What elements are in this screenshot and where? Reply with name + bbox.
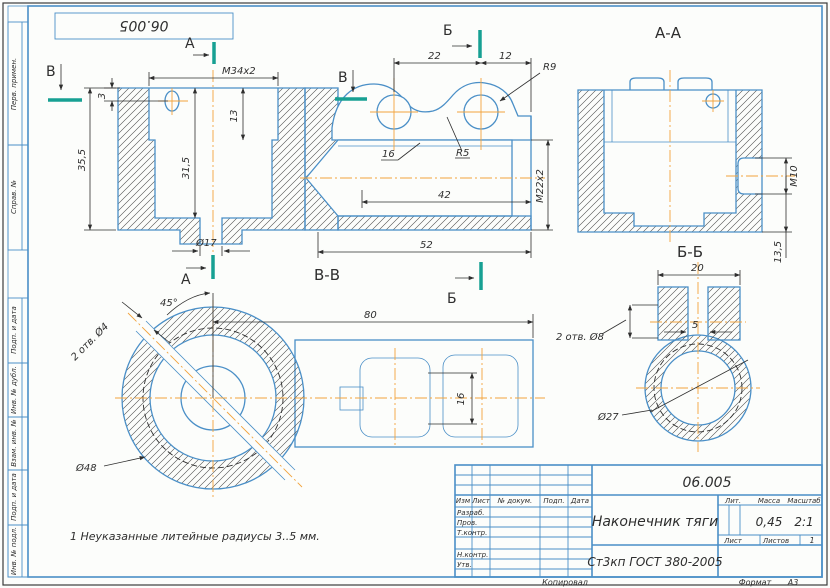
dim-52: 52 — [420, 240, 433, 251]
dim-r9: R9 — [543, 62, 556, 73]
tb-sheet-label: Лист — [723, 537, 743, 545]
section-vv-label: В-В — [314, 266, 340, 284]
dim-45deg: 45° — [160, 298, 178, 309]
section-aa-label: А-А — [655, 24, 682, 42]
tb-role-tkontr: Т.контр. — [457, 529, 487, 537]
section-bb-label: Б-Б — [677, 243, 703, 261]
section-arrow-b-top-label: Б — [443, 23, 453, 39]
tb-header-dokum: № докум. — [497, 497, 533, 505]
section-arrow-a-bottom-label: А — [181, 272, 191, 288]
margin-label: Справ. № — [10, 180, 18, 214]
dim-80: 80 — [364, 310, 377, 321]
dim-d27: Ø27 — [597, 411, 619, 423]
dim-m34x2: М34х2 — [222, 66, 256, 77]
tb-sheets-label: Листов — [762, 537, 789, 545]
format-label: Формат — [739, 578, 772, 587]
dim-holes8: 2 отв. Ø8 — [556, 331, 604, 343]
dim-20: 20 — [691, 263, 704, 274]
dim-d17: Ø17 — [195, 237, 217, 249]
drawing-sheet: Перв. примен. Справ. № Подп. и дата Инв.… — [0, 0, 830, 588]
dim-16-vv: 16 — [456, 393, 467, 406]
dim-35-5: 35,5 — [77, 149, 88, 171]
copied-label: Копировал — [542, 578, 588, 587]
tb-role-nkontr: Н.контр. — [457, 551, 488, 559]
margin-label: Взам. инв. № — [10, 419, 18, 467]
tb-header-podp: Подп. — [543, 497, 564, 505]
tb-mass-label: Масса — [758, 497, 780, 505]
dim-d48: Ø48 — [75, 462, 97, 474]
tb-scale-label: Масштаб — [787, 497, 821, 505]
margin-label: Инв. № дубл. — [10, 366, 18, 414]
dim-13: 13 — [229, 110, 240, 123]
tb-role-razrab: Разраб. — [457, 509, 485, 517]
dim-16-rod: 16 — [382, 149, 395, 160]
rod-bottom-wall — [338, 216, 531, 230]
part-name: Наконечник тяги — [592, 514, 718, 530]
section-arrow-a-top-label: А — [185, 36, 195, 52]
tb-header-izm: Изм — [456, 497, 471, 505]
dim-12: 12 — [499, 51, 512, 62]
dim-m10: М10 — [789, 165, 800, 186]
engineering-drawing: Перв. примен. Справ. № Подп. и дата Инв.… — [0, 0, 830, 588]
dim-22: 22 — [428, 51, 441, 62]
tb-mass-value: 0,45 — [756, 515, 783, 529]
section-arrow-v-left-label: В — [46, 64, 56, 80]
margin-label: Инв. № подл. — [10, 527, 18, 575]
margin-label: Подп. и дата — [10, 473, 18, 521]
tb-role-utv: Утв. — [457, 561, 472, 569]
top-stamp-number: 06.005 — [119, 17, 168, 33]
drawing-note: 1 Неуказанные литейные радиусы 3..5 мм. — [70, 530, 320, 543]
tb-role-prov: Пров. — [457, 519, 477, 527]
section-arrow-b-bottom-label: Б — [447, 291, 457, 307]
doc-number: 06.005 — [683, 475, 732, 491]
format-value: А3 — [787, 578, 799, 587]
tb-scale-value: 2:1 — [794, 515, 813, 529]
aa-lug-left — [630, 78, 664, 90]
dim-42: 42 — [438, 190, 451, 201]
section-arrow-v-mid-label: В — [338, 70, 348, 86]
aa-lug-right — [678, 78, 712, 90]
dim-3: 3 — [97, 93, 108, 99]
dim-5: 5 — [692, 320, 698, 331]
tb-lit-label: Лит. — [724, 497, 741, 505]
tb-header-list: Лист — [471, 497, 491, 505]
vv-rod — [295, 340, 533, 447]
margin-label: Перв. примен. — [10, 58, 18, 111]
tb-sheets-value: 1 — [809, 536, 814, 545]
dim-31-5: 31,5 — [181, 157, 192, 179]
dim-13-5: 13,5 — [773, 241, 784, 263]
margin-label: Подп. и дата — [10, 306, 18, 354]
tb-header-data: Дата — [570, 497, 589, 505]
dim-r5: R5 — [456, 148, 469, 159]
dim-m22x2: М22х2 — [535, 169, 546, 203]
material: Ст3кп ГОСТ 380-2005 — [587, 555, 722, 569]
